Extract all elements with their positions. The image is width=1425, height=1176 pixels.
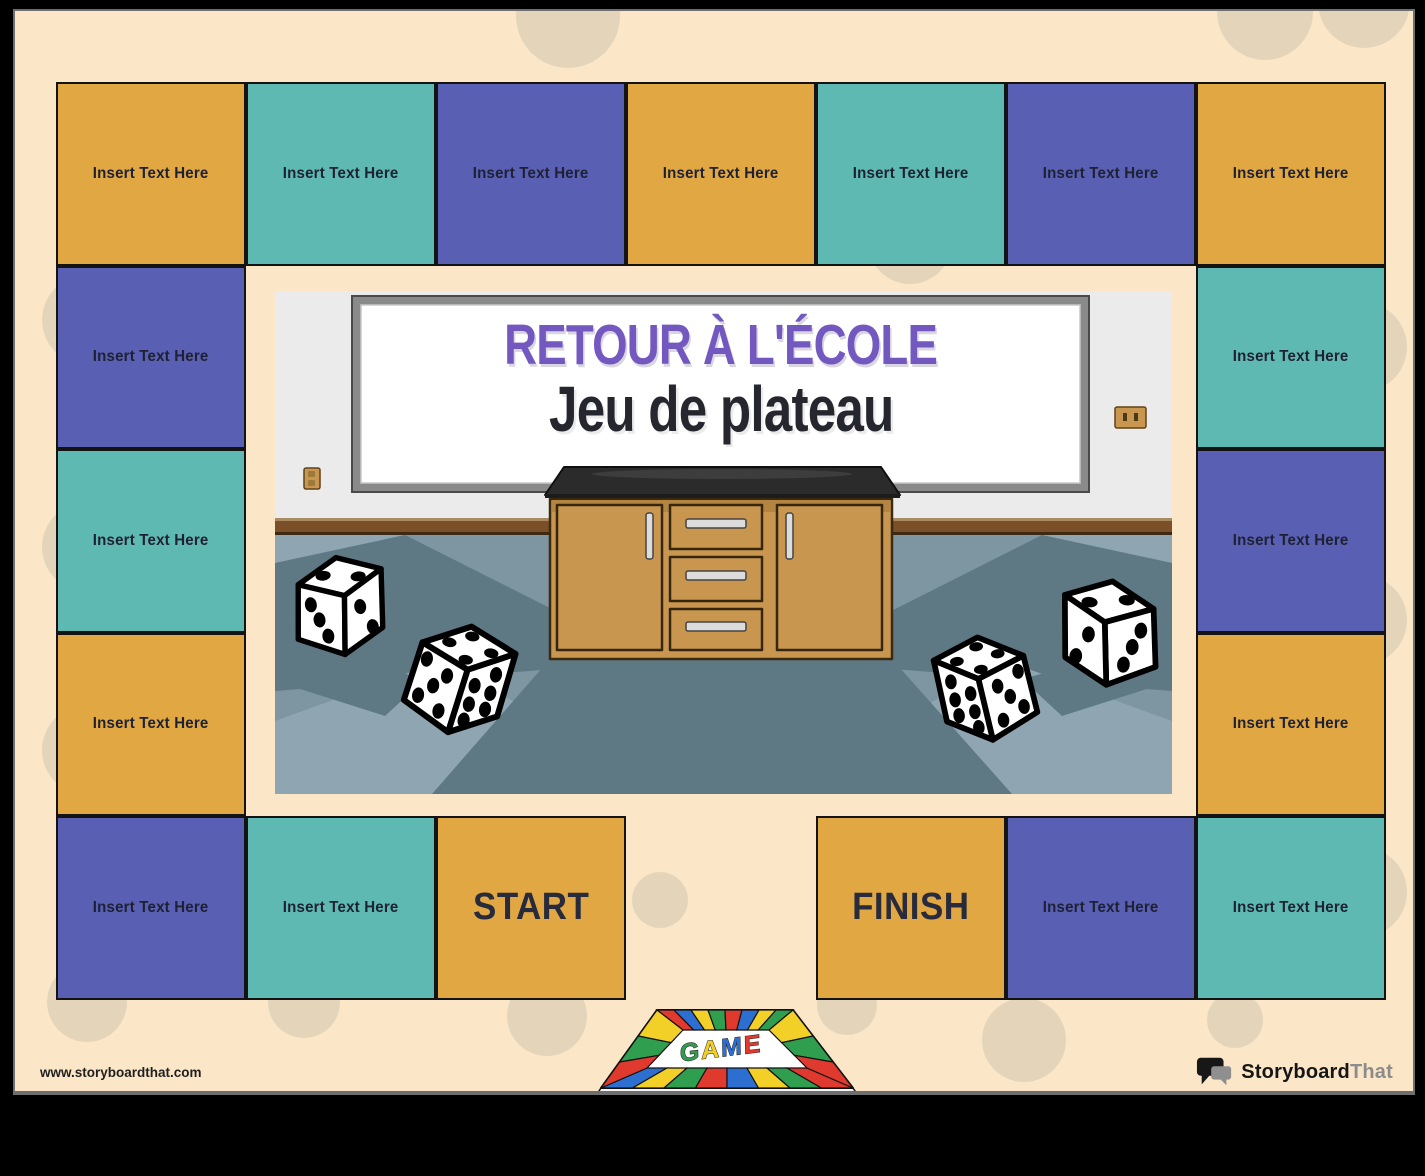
board-cell[interactable]: Insert Text Here [626, 82, 816, 266]
board-cell[interactable]: Insert Text Here [1196, 633, 1386, 817]
cell-label: Insert Text Here [1043, 899, 1159, 917]
cell-label: Insert Text Here [1043, 165, 1159, 183]
cell-label: Insert Text Here [1233, 899, 1349, 917]
cell-label: FINISH [852, 886, 969, 929]
cell-label: Insert Text Here [283, 899, 399, 917]
polka-dot [982, 998, 1066, 1082]
cabinet [545, 467, 900, 659]
cell-label: Insert Text Here [1233, 348, 1349, 366]
board-game-title: RETOUR À L'ÉCOLE [505, 317, 938, 374]
board-cell[interactable]: Insert Text Here [56, 633, 246, 817]
cell-label: Insert Text Here [93, 532, 209, 550]
polka-dot [1207, 992, 1263, 1048]
board-cell[interactable]: Insert Text Here [436, 82, 626, 266]
board-cell[interactable]: Insert Text Here [816, 82, 1006, 266]
cell-label: Insert Text Here [283, 165, 399, 183]
title-block: RETOUR À L'ÉCOLE Jeu de plateau [362, 317, 1080, 441]
polka-dot [516, 9, 620, 68]
polka-dot [1217, 9, 1313, 60]
logo-text: StoryboardThat [1241, 1061, 1393, 1084]
board-cell[interactable]: Insert Text Here [1196, 449, 1386, 633]
board-cell[interactable]: Insert Text Here [246, 82, 436, 266]
board-game-subtitle: Jeu de plateau [549, 377, 893, 441]
board-cell[interactable]: Insert Text Here [246, 816, 436, 1000]
game-board-page: RETOUR À L'ÉCOLE Jeu de plateau Insert T… [13, 9, 1415, 1095]
cell-label: Insert Text Here [853, 165, 969, 183]
screenshot-root: { "title": { "line1": "RETOUR À L'ÉCOLE"… [0, 0, 1425, 1176]
light-switch-icon [1115, 407, 1146, 428]
cell-label: Insert Text Here [663, 165, 779, 183]
storyboardthat-logo: StoryboardThat [1196, 1053, 1393, 1091]
cell-label: Insert Text Here [1233, 165, 1349, 183]
board-cell[interactable]: Insert Text Here [1006, 816, 1196, 1000]
outlet-icon [304, 468, 320, 489]
finish-cell[interactable]: FINISH [816, 816, 1006, 1000]
cell-label: Insert Text Here [473, 165, 589, 183]
board-cell[interactable]: Insert Text Here [1196, 82, 1386, 266]
cell-label: Insert Text Here [93, 165, 209, 183]
cell-label: START [473, 886, 589, 929]
speech-bubbles-icon [1196, 1055, 1234, 1089]
logo-text-that: That [1350, 1061, 1393, 1083]
board-cell[interactable]: Insert Text Here [1196, 816, 1386, 1000]
cell-label: Insert Text Here [1233, 532, 1349, 550]
polka-dot [1318, 9, 1410, 48]
board-cell[interactable]: Insert Text Here [56, 266, 246, 450]
cell-label: Insert Text Here [93, 899, 209, 917]
board-cell[interactable]: Insert Text Here [56, 816, 246, 1000]
cell-label: Insert Text Here [93, 715, 209, 733]
cell-label: Insert Text Here [93, 348, 209, 366]
board-cell[interactable]: Insert Text Here [56, 82, 246, 266]
website-url: www.storyboardthat.com [40, 1065, 202, 1080]
polka-dot [632, 872, 688, 928]
game-board-icon: GAME [595, 1004, 861, 1095]
board-cell[interactable]: Insert Text Here [1006, 82, 1196, 266]
board-cell[interactable]: Insert Text Here [56, 449, 246, 633]
start-cell[interactable]: START [436, 816, 626, 1000]
board-cell[interactable]: Insert Text Here [1196, 266, 1386, 450]
cell-label: Insert Text Here [1233, 715, 1349, 733]
logo-text-storyboard: Storyboard [1241, 1061, 1350, 1083]
